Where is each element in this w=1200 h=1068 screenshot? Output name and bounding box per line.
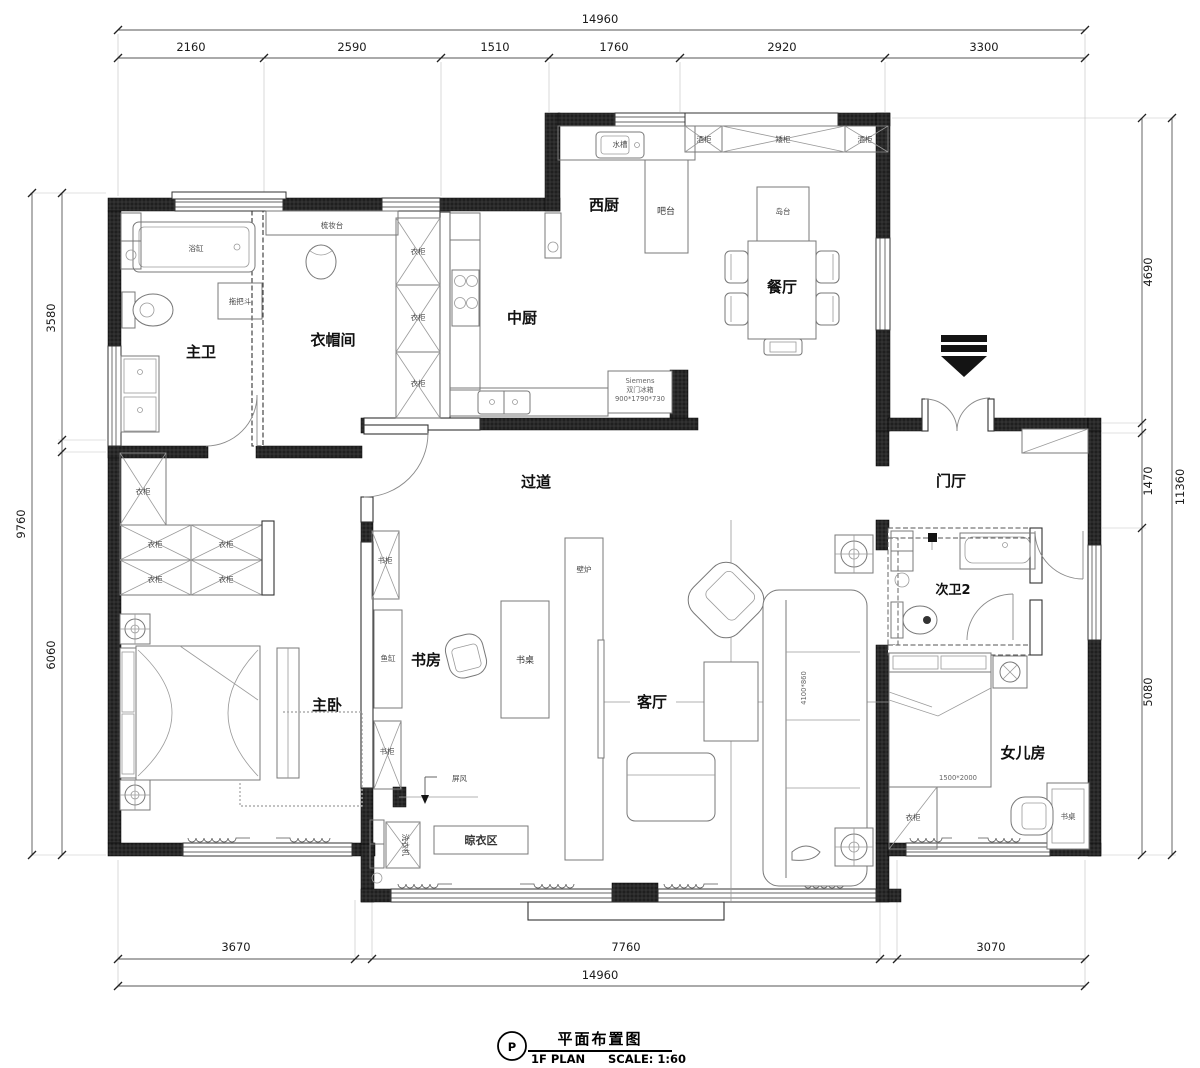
wardrobe-label: 衣柜 <box>148 539 163 549</box>
dim-bottom-2: 7760 <box>611 940 640 954</box>
room-chinese-kitchen: Siemens 双门冰箱 900*1790*730 中厨 <box>450 213 672 416</box>
bookcase-label: 书柜 <box>380 746 395 756</box>
room-corridor: 过道 <box>521 473 551 491</box>
dim-top-1: 2160 <box>176 40 205 54</box>
doors <box>206 395 1083 640</box>
armchair <box>681 555 772 646</box>
room-label-daughter: 女儿房 <box>1000 744 1045 762</box>
room-foyer: 门厅 <box>936 429 1088 490</box>
room-label-corridor: 过道 <box>521 473 551 491</box>
sink-label: 水槽 <box>613 139 628 149</box>
wardrobe-label: 衣柜 <box>136 486 151 496</box>
island-label: 岛台 <box>776 206 791 216</box>
room-living: 壁炉 4100*860 客厅 <box>565 520 893 903</box>
dimension-bottom: 3670 7760 3070 14960 <box>114 860 1089 990</box>
dim-right-1: 4690 <box>1141 257 1155 286</box>
fireplace-label: 壁炉 <box>577 564 592 574</box>
screen-label: 屏风 <box>452 774 467 783</box>
dim-left-2: 6060 <box>44 640 58 669</box>
desk-label: 书桌 <box>1061 811 1077 821</box>
laundry-area: 洗衣机 晾衣区 <box>370 820 528 883</box>
room-daughter: 1500*2000 衣柜 书桌 女儿房 <box>889 653 1089 849</box>
bar-label: 吧台 <box>657 205 675 217</box>
room-master-bedroom: 衣柜 衣柜 衣柜 衣柜 衣柜 主卧 <box>120 453 362 810</box>
room-label-master-bedroom: 主卧 <box>312 696 342 714</box>
entry-arrow-icon <box>941 335 987 377</box>
fish-tank-label: 鱼缸 <box>381 653 396 663</box>
dim-top-3: 1510 <box>480 40 509 54</box>
room-study: 书柜 鱼缸 书柜 书桌 书房 屏风 <box>372 531 549 804</box>
wardrobe-label: 衣柜 <box>219 539 234 549</box>
room-label-west-kitchen: 西厨 <box>589 196 619 214</box>
dim-left-1: 3580 <box>44 303 58 332</box>
bed-size-label: 1500*2000 <box>939 774 977 782</box>
washer-label: 洗衣机 <box>401 834 411 857</box>
wardrobe-label: 衣柜 <box>411 246 426 256</box>
sofa-size-label: 4100*860 <box>800 671 808 705</box>
title-symbol: P <box>508 1040 516 1054</box>
wardrobe-label: 衣柜 <box>411 312 426 322</box>
plan-subtitle: 1F PLAN <box>531 1052 585 1063</box>
room-label-closet: 衣帽间 <box>310 331 355 349</box>
fridge-size: 900*1790*730 <box>615 395 665 403</box>
room-label-dining: 餐厅 <box>767 278 797 296</box>
dimension-left: 3580 6060 9760 <box>14 189 106 859</box>
room-closet: 梳妆台 衣柜 衣柜 衣柜 衣帽间 <box>266 211 440 418</box>
wardrobe-label: 衣柜 <box>411 378 426 388</box>
wine-cabinet-label: 酒柜 <box>858 134 873 144</box>
mop-sink-label: 拖把斗 <box>229 296 252 306</box>
dim-top-4: 1760 <box>599 40 628 54</box>
dim-right-3: 5080 <box>1141 677 1155 706</box>
room-label-foyer: 门厅 <box>936 472 966 490</box>
wardrobe-label: 衣柜 <box>219 574 234 584</box>
floor-plan-drawing: 14960 2160 2590 1510 1760 2920 3300 3670… <box>0 0 1200 1063</box>
dim-top-2: 2590 <box>337 40 366 54</box>
room-label-drying: 晾衣区 <box>465 833 498 847</box>
wine-cabinet-label: 酒柜 <box>697 134 712 144</box>
room-label-study: 书房 <box>411 651 441 669</box>
dim-top-total: 14960 <box>582 12 619 26</box>
room-label-living: 客厅 <box>636 693 667 711</box>
low-cabinet-label: 矮柜 <box>776 134 791 144</box>
plan-scale: SCALE: 1:60 <box>608 1052 686 1063</box>
title-block: P 平面布置图 1F PLAN SCALE: 1:60 <box>498 1030 686 1063</box>
bookcase-label: 书柜 <box>378 555 393 565</box>
dim-top-6: 3300 <box>969 40 998 54</box>
dim-bottom-total: 14960 <box>582 968 619 982</box>
room-master-bath: 浴缸 拖把斗 主卫 <box>121 213 262 432</box>
fridge-brand: Siemens <box>625 377 654 385</box>
room-label-bath2: 次卫2 <box>935 582 970 598</box>
room-dining: 酒柜 矮柜 酒柜 岛台 餐厅 <box>685 126 888 355</box>
dim-top-5: 2920 <box>767 40 796 54</box>
dim-left-total: 9760 <box>14 509 28 538</box>
floor-plan-page: 14960 2160 2590 1510 1760 2920 3300 3670… <box>0 0 1200 1063</box>
dim-right-2: 1470 <box>1141 466 1155 495</box>
wardrobe-label: 衣柜 <box>906 812 921 822</box>
room-label-chinese-kitchen: 中厨 <box>507 309 537 327</box>
dim-right-total: 11360 <box>1173 469 1187 506</box>
wardrobe-label: 衣柜 <box>148 574 163 584</box>
plan-title: 平面布置图 <box>557 1030 642 1048</box>
room-west-kitchen: 水槽 吧台 西厨 <box>558 126 695 253</box>
dim-bottom-1: 3670 <box>221 940 250 954</box>
dim-bottom-3: 3070 <box>976 940 1005 954</box>
desk-label: 书桌 <box>516 654 534 666</box>
room-label-master-bath: 主卫 <box>186 343 216 361</box>
fridge-name: 双门冰箱 <box>626 385 653 394</box>
bathtub-label: 浴缸 <box>189 243 204 253</box>
dresser-label: 梳妆台 <box>321 220 344 230</box>
